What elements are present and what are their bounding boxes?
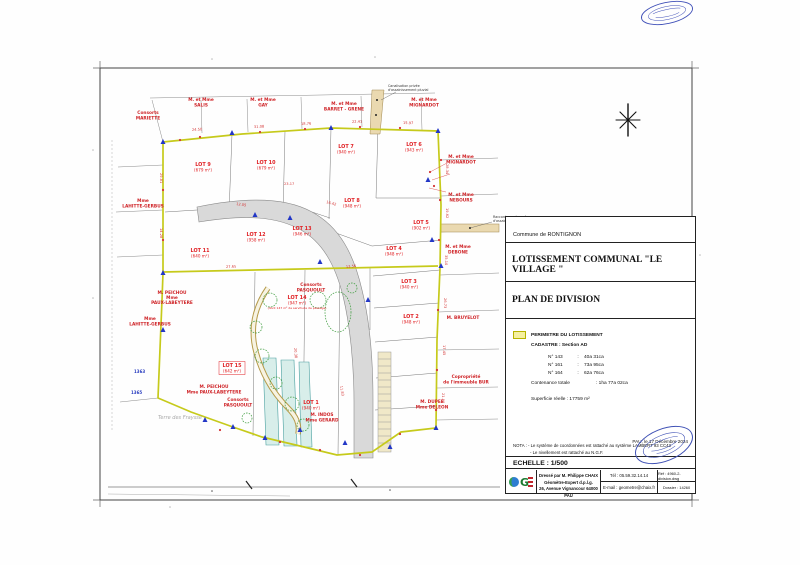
svg-text:(947 m²): (947 m²) bbox=[288, 301, 306, 306]
svg-text:M. et Mme: M. et Mme bbox=[188, 97, 214, 103]
svg-text:M. et Mme: M. et Mme bbox=[250, 97, 276, 103]
svg-text:Mme DELEON: Mme DELEON bbox=[416, 405, 449, 411]
svg-text:MIGNARDOT: MIGNARDOT bbox=[446, 160, 476, 166]
svg-text:(902 m²): (902 m²) bbox=[412, 226, 430, 231]
owner-label: ConsortsPASQUOULT bbox=[297, 282, 325, 294]
north-star-icon bbox=[616, 104, 640, 136]
svg-text:16.42: 16.42 bbox=[326, 200, 337, 207]
svg-text:SALIS: SALIS bbox=[194, 103, 208, 109]
firm-line2: Géomètre-Expert d.p.l.g. bbox=[537, 480, 600, 487]
svg-text:de l'immeuble BUR: de l'immeuble BUR bbox=[443, 380, 489, 386]
owner-label: M. INDOSMme GERARD bbox=[305, 412, 339, 424]
owner-label: Copropriétéde l'immeuble BUR bbox=[443, 373, 489, 386]
svg-text:Consorts: Consorts bbox=[300, 282, 322, 288]
svg-text:BARRET - GRENE: BARRET - GRENE bbox=[324, 107, 364, 113]
svg-text:(946 m²): (946 m²) bbox=[293, 232, 311, 237]
owner-label: M. et MmeGAY bbox=[250, 97, 276, 109]
svg-text:DEBONE: DEBONE bbox=[448, 250, 468, 256]
svg-text:PAUX-LABEYTERE: PAUX-LABEYTERE bbox=[151, 300, 193, 306]
firm-address: Dressé par M. Philippe CHAIX Géomètre-Ex… bbox=[537, 470, 601, 493]
svg-text:18.76: 18.76 bbox=[301, 122, 312, 126]
parcel-id: 1365 bbox=[131, 390, 142, 395]
svg-text:(940 m²): (940 m²) bbox=[337, 150, 355, 155]
owner-label: M. et MmeSALIS bbox=[188, 97, 214, 109]
svg-text:(679 m²): (679 m²) bbox=[194, 168, 212, 173]
plan-sheet: ConsortsMARIETTE M. et MmeSALIS M. et Mm… bbox=[0, 0, 800, 565]
svg-text:NEBOURS: NEBOURS bbox=[449, 198, 472, 204]
plan-subtitle: PLAN DE DIVISION bbox=[506, 282, 695, 319]
lot-label: LOT 4(948 m²) bbox=[385, 246, 403, 257]
plan-title: LOTISSEMENT COMMUNAL "LE VILLAGE " bbox=[506, 243, 695, 282]
superficie-row: Superficie réelle : 17759 m² bbox=[531, 397, 590, 402]
svg-text:28.34: 28.34 bbox=[445, 164, 449, 175]
svg-text:(948 m²): (948 m²) bbox=[402, 320, 420, 325]
owner-label: M. et MmeNEBOURS bbox=[448, 192, 474, 204]
svg-text:M. BRUYELOT: M. BRUYELOT bbox=[447, 315, 480, 321]
lot-label: LOT 7(940 m²) bbox=[337, 144, 355, 155]
svg-text:23.17: 23.17 bbox=[284, 182, 294, 186]
svg-text:15.97: 15.97 bbox=[403, 121, 413, 125]
svg-text:35.10: 35.10 bbox=[444, 255, 448, 266]
svg-text:(958 m²): (958 m²) bbox=[247, 238, 265, 243]
stairs-strip bbox=[378, 352, 391, 452]
svg-text:(948 m²): (948 m²) bbox=[343, 204, 361, 209]
svg-text:Consorts: Consorts bbox=[227, 397, 249, 403]
lot-label: LOT 11(640 m²) bbox=[191, 248, 211, 259]
svg-text:(642 m²): (642 m²) bbox=[223, 369, 241, 374]
geometre-logo-icon: G bbox=[508, 472, 534, 492]
svg-text:(948 m²): (948 m²) bbox=[385, 252, 403, 257]
svg-text:M. et Mme: M. et Mme bbox=[448, 154, 474, 160]
commune-label: Commune de RONTIGNON bbox=[506, 217, 695, 243]
firm-line1: Dressé par M. Philippe CHAIX bbox=[537, 473, 600, 480]
svg-text:GAY: GAY bbox=[258, 103, 268, 109]
svg-text:MIGNARDOT: MIGNARDOT bbox=[409, 103, 439, 109]
geometre-logo: G bbox=[506, 470, 537, 493]
svg-text:24.50: 24.50 bbox=[192, 127, 203, 132]
svg-text:(640 m²): (640 m²) bbox=[191, 254, 209, 259]
owner-label: M. PEICHOUMmePAUX-LABEYTERE bbox=[151, 290, 193, 306]
lot-label: LOT 9(679 m²) bbox=[194, 162, 212, 173]
svg-text:Copropriété: Copropriété bbox=[452, 373, 481, 380]
firm-line3: 26, Avenue Vignancour 64000 PAU bbox=[537, 486, 600, 499]
servitude-note: (dont 147 m² de servitude de passage) bbox=[268, 306, 327, 310]
title-block: Commune de RONTIGNON LOTISSEMENT COMMUNA… bbox=[505, 216, 696, 494]
svg-text:PASQUOULT: PASQUOULT bbox=[297, 288, 325, 294]
svg-text:M. INDOS: M. INDOS bbox=[311, 412, 334, 418]
firm-ref: Réf : 4960-2-division.dwg Dossier : 1426… bbox=[658, 470, 695, 493]
owner-label: M. et MmeMIGNARDOT bbox=[446, 154, 476, 166]
perimeter-swatch bbox=[513, 331, 526, 339]
svg-text:M. et Mme: M. et Mme bbox=[445, 244, 471, 250]
cadastre-parcel-row: N° 143 : 40a 31ca bbox=[548, 355, 604, 360]
lot-label: LOT 15(642 m²) bbox=[219, 362, 245, 375]
lot-label: LOT 10(679 m²) bbox=[257, 160, 277, 171]
contenance-row: Contenance totale : 1ha 77a 02ca bbox=[531, 381, 628, 386]
lot-labels: LOT 1(940 m²) LOT 2(948 m²) LOT 3(940 m²… bbox=[191, 142, 431, 411]
svg-text:(940 m²): (940 m²) bbox=[400, 285, 418, 290]
svg-text:Mme PAUX-LABEYTERE: Mme PAUX-LABEYTERE bbox=[187, 390, 242, 396]
cadastre-parcel-row: N° 161 : 73a 95ca bbox=[548, 363, 604, 368]
svg-text:21.90: 21.90 bbox=[441, 393, 445, 404]
svg-text:20.38: 20.38 bbox=[293, 348, 298, 359]
svg-text:26.73: 26.73 bbox=[443, 298, 447, 308]
lot-label: LOT 5(902 m²) bbox=[412, 220, 430, 231]
perimeter-label: PERIMETRE DU LOTISSEMENT bbox=[531, 333, 603, 338]
owner-label: ConsortsPASQUOULT bbox=[224, 397, 252, 409]
pipe-strips bbox=[370, 90, 499, 232]
svg-text:22.41: 22.41 bbox=[352, 120, 362, 124]
svg-text:14.28: 14.28 bbox=[159, 228, 163, 239]
owner-label: MmeLAHITTE-GERBUS bbox=[129, 316, 171, 328]
svg-text:17.45: 17.45 bbox=[442, 345, 446, 355]
stamp-top bbox=[639, 0, 694, 29]
svg-text:(940 m²): (940 m²) bbox=[302, 406, 320, 411]
svg-text:27.65: 27.65 bbox=[226, 265, 236, 269]
lot-label: LOT 6(943 m²) bbox=[405, 142, 423, 153]
owner-label: M. PEICHOUMme PAUX-LABEYTERE bbox=[187, 384, 242, 396]
pipe-note-line2: d'assainissement pluvial bbox=[388, 88, 429, 92]
firm-band: G Dressé par M. Philippe CHAIX Géomètre-… bbox=[506, 470, 695, 493]
owner-label: M. et MmeDEBONE bbox=[445, 244, 471, 256]
lot-label: LOT 1(940 m²) bbox=[302, 400, 320, 411]
owner-label: M. BRUYELOT bbox=[447, 315, 480, 321]
firm-email: E-mail : geometre@chaix.fr bbox=[601, 482, 657, 493]
dossier-label: Dossier : 14260 bbox=[658, 482, 695, 493]
lot-label: LOT 12(958 m²) bbox=[247, 232, 266, 243]
svg-text:Mme: Mme bbox=[144, 316, 156, 322]
owner-label: M. et MmeBARRET - GRENE bbox=[324, 101, 364, 113]
lot-label: LOT 8(948 m²) bbox=[343, 198, 361, 209]
svg-text:29.81: 29.81 bbox=[159, 173, 163, 183]
svg-text:MARIETTE: MARIETTE bbox=[136, 116, 160, 122]
svg-text:M. et Mme: M. et Mme bbox=[411, 97, 437, 103]
parcel-id: 1363 bbox=[134, 369, 145, 374]
cadastre-parcel-row: N° 164 : 62a 76ca bbox=[548, 371, 604, 376]
svg-text:Mme: Mme bbox=[137, 198, 149, 204]
svg-text:LAHITTE-GERBUS: LAHITTE-GERBUS bbox=[129, 322, 171, 328]
svg-text:11.83: 11.83 bbox=[339, 385, 345, 396]
svg-text:M. PEICHOU: M. PEICHOU bbox=[200, 384, 229, 390]
stamp-cartouche bbox=[628, 417, 698, 473]
svg-text:PASQUOULT: PASQUOULT bbox=[224, 403, 252, 409]
terrain-note: Terre des Fraysse bbox=[158, 415, 202, 421]
svg-text:Mme GERARD: Mme GERARD bbox=[305, 418, 339, 424]
svg-text:G: G bbox=[520, 476, 529, 489]
svg-text:M. DUPEE: M. DUPEE bbox=[420, 399, 444, 405]
bottom-road bbox=[108, 479, 500, 496]
owner-label: MmeLAHITTE-GERBUS bbox=[122, 198, 164, 210]
svg-text:Consorts: Consorts bbox=[137, 110, 159, 116]
owner-label: ConsortsMARIETTE bbox=[136, 110, 160, 122]
lot-label: LOT 14(947 m²)(dont 147 m² de servitude … bbox=[268, 295, 327, 310]
svg-text:31.08: 31.08 bbox=[254, 124, 265, 129]
lot-label: LOT 13(946 m²) bbox=[293, 226, 313, 237]
svg-text:M. et Mme: M. et Mme bbox=[448, 192, 474, 198]
firm-contact: Tél : 05.59.32.14.14 E-mail : geometre@c… bbox=[601, 470, 658, 493]
svg-text:LAHITTE-GERBUS: LAHITTE-GERBUS bbox=[122, 204, 164, 210]
cadastre-label: CADASTRE : Section AD bbox=[531, 343, 587, 348]
lot-label: LOT 2(948 m²) bbox=[402, 314, 420, 325]
svg-text:(943 m²): (943 m²) bbox=[405, 148, 423, 153]
svg-text:19.62: 19.62 bbox=[445, 208, 449, 218]
lot-label: LOT 3(940 m²) bbox=[400, 279, 418, 290]
svg-text:M. et Mme: M. et Mme bbox=[331, 101, 357, 107]
svg-text:(679 m²): (679 m²) bbox=[257, 166, 275, 171]
owner-label: M. et MmeMIGNARDOT bbox=[409, 97, 439, 109]
